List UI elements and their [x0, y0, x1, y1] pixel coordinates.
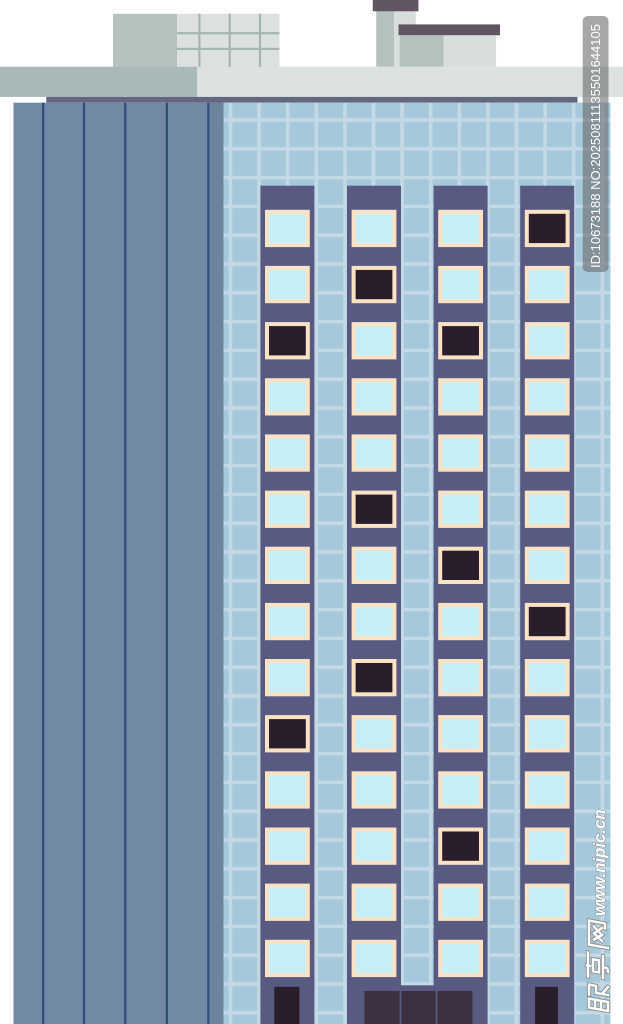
svg-text:ID:10673188 NO:202508111355016: ID:10673188 NO:20250811135501644105	[588, 24, 603, 268]
svg-text:www.nipic.cn: www.nipic.cn	[590, 809, 609, 916]
